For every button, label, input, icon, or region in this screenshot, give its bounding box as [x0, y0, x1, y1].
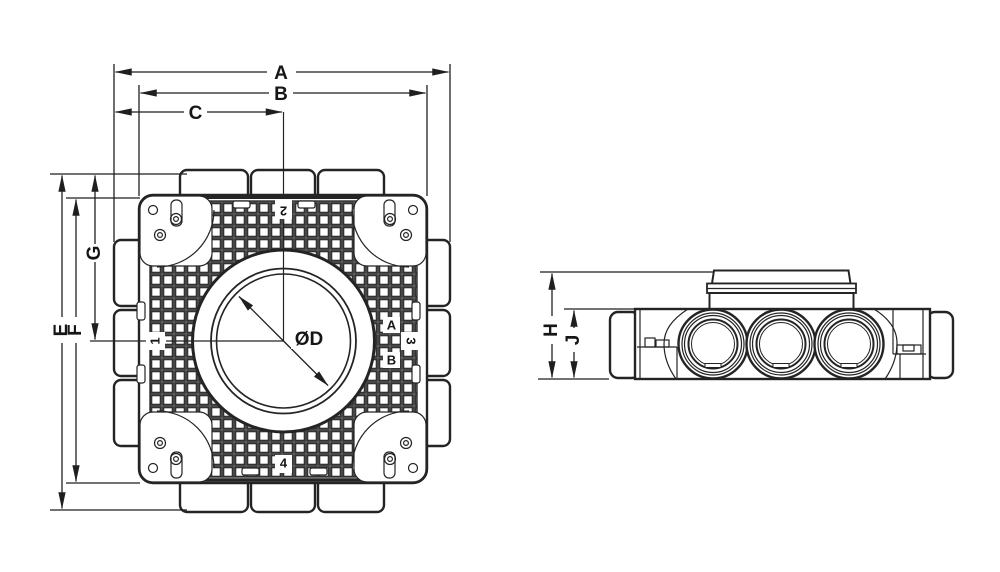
dim-label-F: F: [65, 324, 86, 336]
dim-label-C: C: [189, 103, 203, 124]
dimension-B: B: [141, 84, 426, 105]
dim-label-J: J: [563, 335, 584, 346]
corner-bracket-top-right: [352, 196, 426, 267]
port-number-1: 1: [147, 337, 162, 344]
dim-label-A: A: [274, 63, 288, 84]
dim-label-B: B: [274, 84, 288, 105]
side-port-2: [747, 310, 816, 379]
dimension-F: F: [65, 200, 86, 482]
port-number-3: 3: [404, 337, 419, 344]
side-port-1: [679, 310, 748, 379]
dimension-H: H: [541, 274, 562, 378]
dim-label-G: G: [84, 246, 105, 261]
outlet-label-a: A: [387, 317, 397, 332]
dimension-G: G: [84, 176, 105, 340]
port-number-2: 2: [280, 204, 287, 219]
side-view: [610, 271, 953, 380]
technical-drawing: ØD 2 1 3 4 A B: [0, 0, 1000, 572]
outlet-label-b: B: [387, 352, 396, 367]
dimension-E: E: [51, 176, 72, 509]
dim-label-H: H: [541, 323, 562, 337]
side-port-3: [815, 310, 884, 379]
dim-label-diameter: ØD: [295, 329, 324, 350]
corner-bracket-bottom-left: [140, 411, 214, 482]
front-view: ØD 2 1 3 4 A B: [90, 112, 450, 512]
port-number-4: 4: [280, 455, 288, 470]
dimension-A: A: [116, 63, 449, 84]
dimension-J: J: [563, 311, 584, 378]
corner-bracket-top-left: [140, 196, 214, 267]
corner-bracket-bottom-right: [352, 411, 426, 482]
collar: [707, 271, 856, 310]
dimension-C: C: [116, 103, 283, 124]
